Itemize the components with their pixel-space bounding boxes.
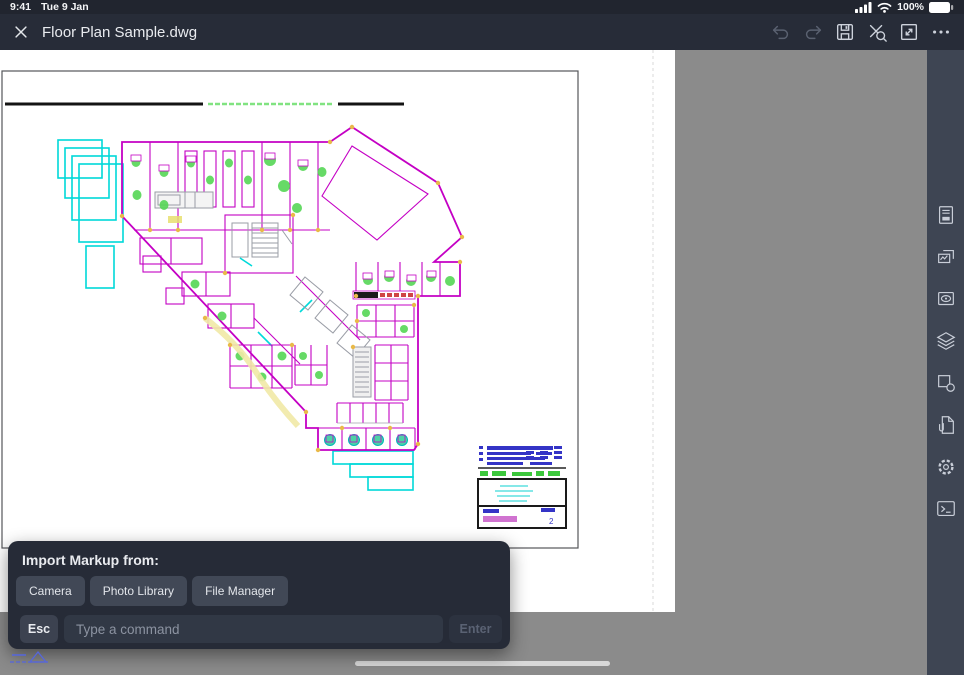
autocad-mobile-app: { "status_bar": { "time": "9:41", "date"… [0, 0, 964, 675]
settings-icon[interactable] [934, 455, 958, 479]
import-markup-popup: Import Markup from: Camera Photo Library… [8, 541, 510, 649]
command-input[interactable] [64, 615, 443, 643]
battery-icon [929, 2, 954, 13]
status-bar: 9:41 Tue 9 Jan 100% [0, 0, 964, 14]
popup-buttons: Camera Photo Library File Manager [16, 576, 288, 606]
more-icon[interactable] [926, 17, 956, 47]
toolbar-actions [766, 17, 958, 47]
blocks-icon[interactable] [934, 371, 958, 395]
horizontal-scrollbar[interactable] [355, 661, 610, 666]
sheets-icon[interactable] [934, 203, 958, 227]
cad-fragment-glyph [8, 648, 60, 666]
clock: 9:41 [10, 1, 31, 13]
battery-percent: 100% [897, 1, 924, 13]
attachments-icon[interactable] [934, 413, 958, 437]
redo-icon[interactable] [798, 17, 828, 47]
layouts-icon[interactable] [934, 245, 958, 269]
document-title: Floor Plan Sample.dwg [42, 24, 197, 41]
popup-title: Import Markup from: [22, 552, 159, 568]
file-manager-button[interactable]: File Manager [192, 576, 288, 606]
fit-screen-icon[interactable] [894, 17, 924, 47]
toolbar: Floor Plan Sample.dwg [0, 14, 964, 50]
wifi-icon [877, 2, 892, 13]
trim-zoom-icon[interactable] [862, 17, 892, 47]
photo-library-button[interactable]: Photo Library [90, 576, 187, 606]
status-right: 100% [855, 1, 954, 13]
undo-icon[interactable] [766, 17, 796, 47]
layers-icon[interactable] [934, 329, 958, 353]
command-line-icon[interactable] [934, 497, 958, 521]
cellular-signal-icon [855, 2, 872, 13]
close-icon[interactable] [6, 17, 36, 47]
save-icon[interactable] [830, 17, 860, 47]
enter-button: Enter [449, 615, 502, 643]
esc-button[interactable]: Esc [20, 615, 58, 643]
status-left: 9:41 Tue 9 Jan [10, 1, 89, 13]
tool-sidebar [927, 50, 964, 675]
camera-button[interactable]: Camera [16, 576, 85, 606]
views-icon[interactable] [934, 287, 958, 311]
status-date: Tue 9 Jan [41, 1, 89, 13]
sheet-number: 2 [549, 517, 554, 526]
